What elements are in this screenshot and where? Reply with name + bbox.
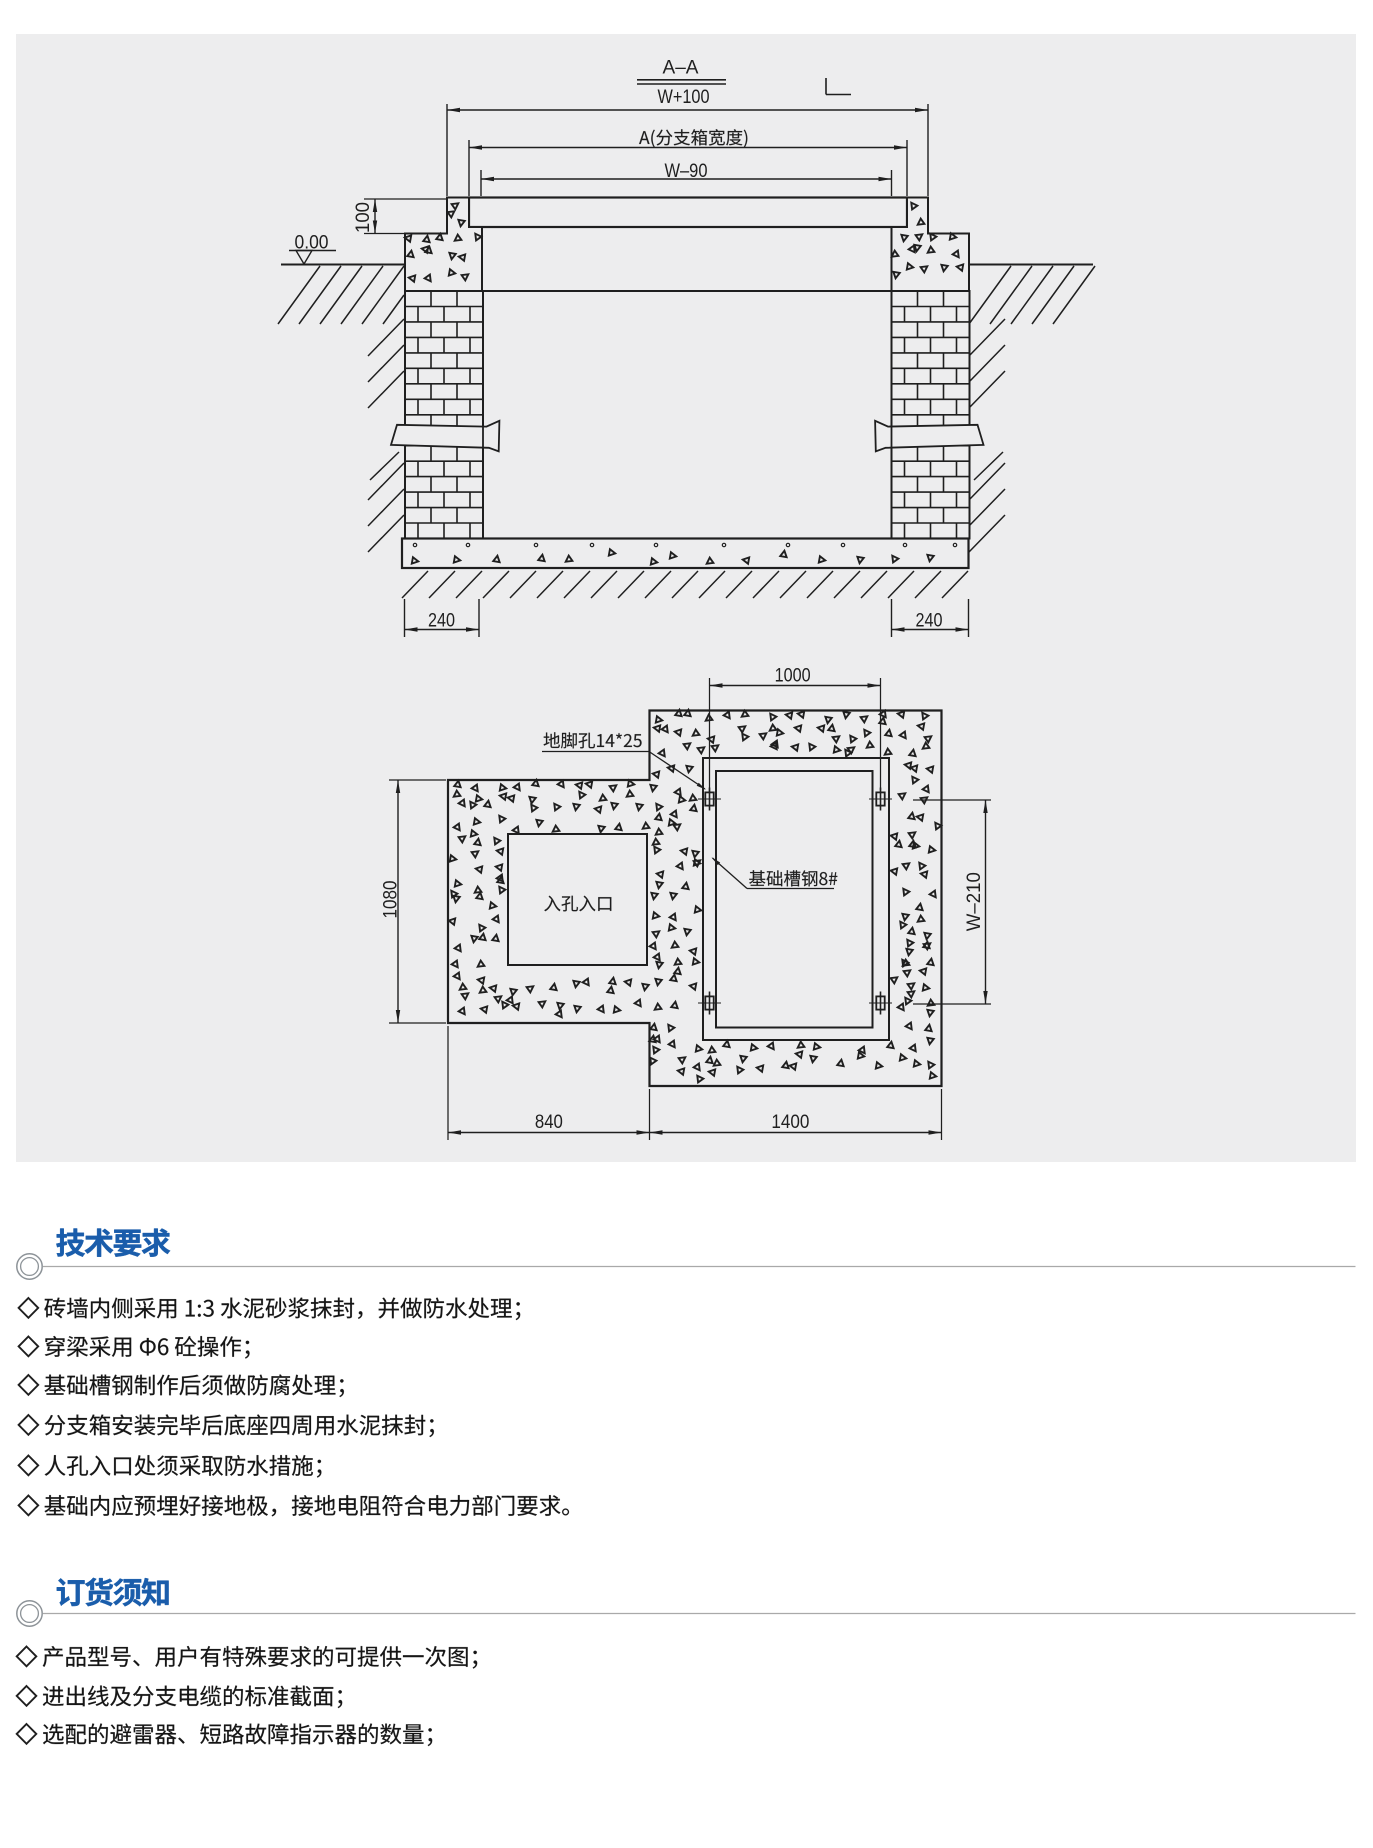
svg-text:240: 240 — [916, 611, 943, 632]
svg-text:W–210: W–210 — [964, 872, 985, 931]
svg-text:1400: 1400 — [771, 1112, 809, 1133]
svg-text:A–A: A–A — [663, 58, 699, 79]
svg-text:240: 240 — [428, 611, 455, 632]
svg-text:1000: 1000 — [775, 666, 811, 687]
svg-text:840: 840 — [535, 1112, 563, 1133]
svg-text:100: 100 — [353, 202, 374, 233]
svg-text:W+100: W+100 — [658, 87, 710, 108]
